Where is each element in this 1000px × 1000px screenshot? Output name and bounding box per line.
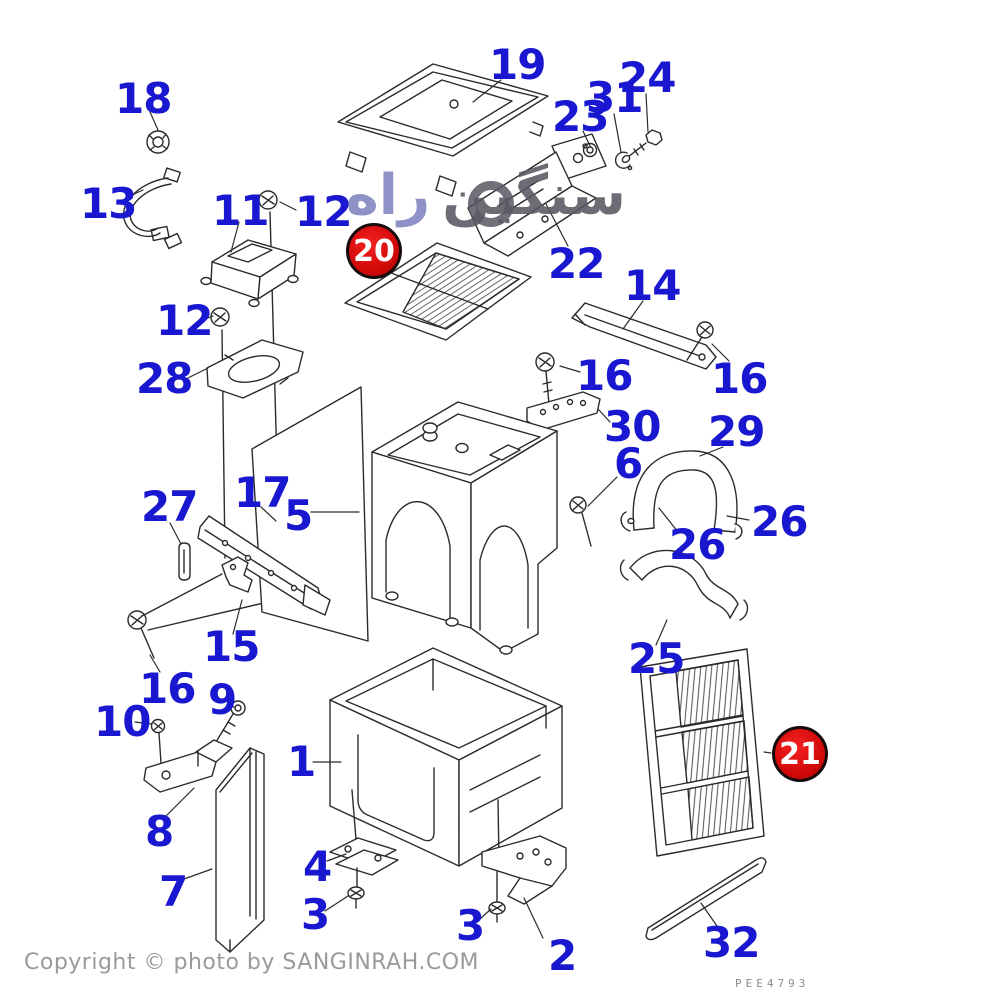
part-5-upper-housing [372,402,557,654]
part-label-5: 5 [284,495,312,537]
highlight-badge-21: 21 [772,726,828,782]
part-label-24: 24 [619,57,675,99]
part-label-7: 7 [159,871,187,913]
part-3-screw-a [348,868,364,908]
part-28-gasket-plate [207,340,303,398]
watermark-ring-icon [468,181,514,227]
part-label-4: 4 [303,846,331,888]
part-label-16a: 16 [576,355,632,397]
part-label-27: 27 [141,486,197,528]
part-16-screw-a [536,353,554,404]
part-label-6: 6 [614,443,642,485]
part-15-bracket [222,557,252,592]
part-label-29: 29 [708,411,764,453]
part-label-8: 8 [145,811,173,853]
part-12-screw-b [211,308,229,326]
badge-20-number: 20 [353,234,395,269]
part-label-25: 25 [628,638,684,680]
part-27-pin [179,543,190,580]
highlight-badge-20: 20 [346,223,402,279]
part-8-bracket [144,740,232,792]
parts-diagram-stage: سنگین راه 18 13 11 12 19 23 31 24 22 14 … [0,0,1000,1000]
drawing-code: PEE4793 [735,977,809,990]
part-label-12a: 12 [295,191,351,233]
part-7-panel [216,748,264,952]
part-label-2: 2 [548,935,576,977]
part-label-19: 19 [489,44,545,86]
part-label-26b: 26 [751,501,807,543]
part-label-12b: 12 [156,300,212,342]
part-18-grommet [147,131,169,153]
part-label-18: 18 [115,78,171,120]
part-label-28: 28 [136,358,192,400]
badge-21-number: 21 [779,737,821,772]
part-label-3b: 3 [456,905,484,947]
part-label-11: 11 [212,190,268,232]
part-label-26a: 26 [669,524,725,566]
part-label-3a: 3 [301,894,329,936]
part-1-lower-housing [330,648,562,866]
part-16-screw-c [128,611,154,658]
part-6-screw [570,497,591,546]
copyright-text: Copyright © photo by SANGINRAH.COM [24,950,479,975]
part-11-controller-box [201,240,298,307]
part-label-16b: 16 [711,358,767,400]
part-label-14: 14 [624,265,680,307]
part-label-22: 22 [548,243,604,285]
part-label-1: 1 [287,741,315,783]
part-label-13: 13 [80,183,136,225]
part-label-15: 15 [203,626,259,668]
part-label-9: 9 [208,679,236,721]
part-label-17: 17 [234,472,290,514]
part-10-screw [152,720,165,764]
part-24-bolt [621,130,662,164]
part-label-10: 10 [94,701,150,743]
part-3-screw-b [489,872,505,922]
part-label-32: 32 [703,922,759,964]
